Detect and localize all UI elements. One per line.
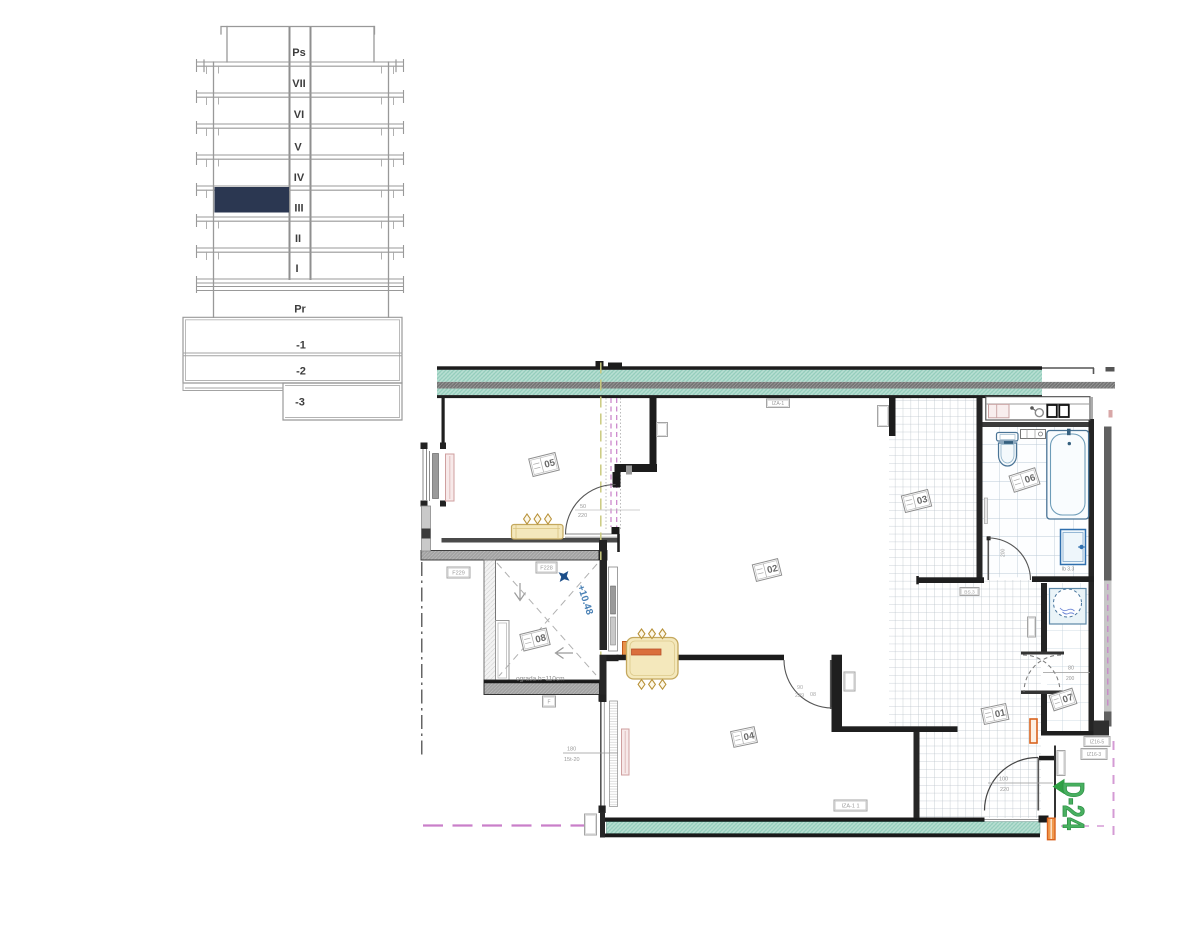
svg-text:-1: -1 <box>296 340 306 352</box>
svg-text:08: 08 <box>810 692 816 698</box>
svg-text:IZA-1 1: IZA-1 1 <box>841 804 859 810</box>
svg-text:50: 50 <box>580 504 586 510</box>
svg-text:200: 200 <box>1001 548 1007 557</box>
svg-text:220: 220 <box>578 513 587 519</box>
svg-text:lb 3.3: lb 3.3 <box>1062 567 1074 573</box>
svg-text:180: 180 <box>567 747 576 753</box>
svg-text:80: 80 <box>1068 666 1074 672</box>
svg-text:III: III <box>294 203 303 215</box>
svg-text:15t-20: 15t-20 <box>564 757 580 763</box>
svg-text:F: F <box>547 700 550 706</box>
svg-text:F228: F228 <box>540 566 553 572</box>
svg-text:II: II <box>295 233 301 245</box>
svg-text:IZA-1: IZA-1 <box>772 401 784 407</box>
svg-text:VI: VI <box>294 109 304 121</box>
svg-text:ograda h=110cm: ograda h=110cm <box>516 676 564 683</box>
svg-text:-2: -2 <box>296 366 306 378</box>
svg-text:100: 100 <box>999 777 1008 783</box>
svg-text:IZ16-3: IZ16-3 <box>1087 752 1102 758</box>
svg-text:VII: VII <box>292 78 305 90</box>
svg-text:90: 90 <box>797 685 803 691</box>
svg-text:Pr: Pr <box>294 304 306 316</box>
svg-text:BS.3: BS.3 <box>964 590 975 596</box>
svg-text:200: 200 <box>1066 676 1075 682</box>
svg-text:IZ16-5: IZ16-5 <box>1090 740 1105 746</box>
svg-text:F229: F229 <box>452 571 465 577</box>
svg-text:I: I <box>295 263 298 275</box>
svg-text:D-24: D-24 <box>1056 782 1090 830</box>
svg-text:229: 229 <box>795 693 804 699</box>
svg-text:220: 220 <box>1000 787 1009 793</box>
svg-text:V: V <box>294 142 302 154</box>
svg-text:-3: -3 <box>295 397 305 409</box>
svg-text:Ps: Ps <box>292 47 305 59</box>
svg-text:IV: IV <box>294 172 305 184</box>
